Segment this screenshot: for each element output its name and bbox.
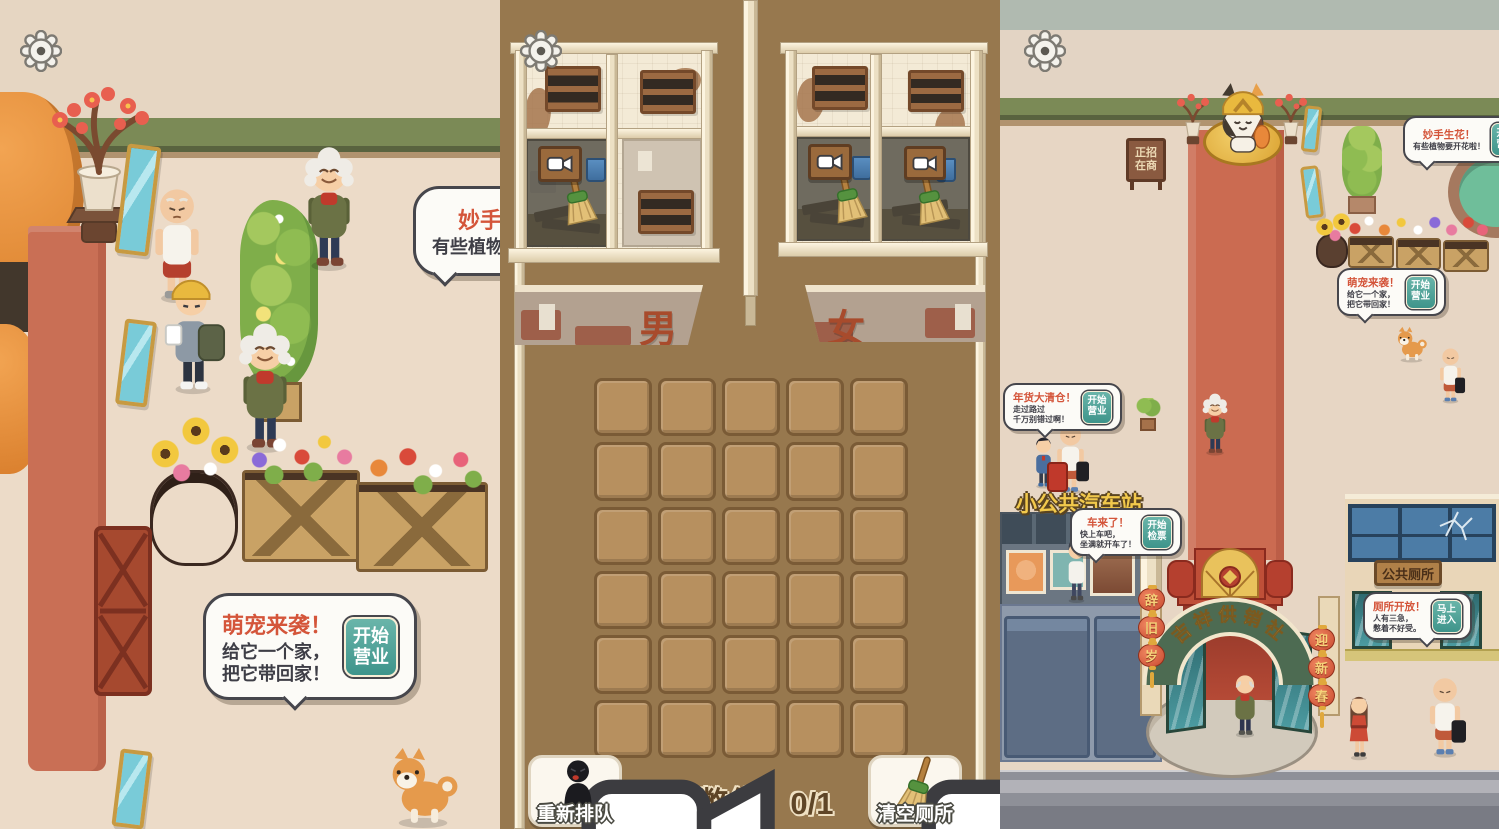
bubble-line: 憋着不好受。 bbox=[1373, 624, 1421, 634]
plum-pot bbox=[1170, 86, 1216, 150]
bubble-title: 妙手生花！ bbox=[1423, 127, 1476, 142]
building-post bbox=[970, 50, 983, 252]
grid-cell[interactable] bbox=[850, 442, 908, 500]
requeue-label: 重新排队 bbox=[537, 799, 613, 826]
settings-gear-icon[interactable] bbox=[20, 30, 62, 72]
planter-flowers bbox=[246, 424, 358, 484]
bubble-line: 人有三急， bbox=[1373, 614, 1413, 624]
bubble-text: 萌宠来袭！ 给它一个家， 把它带回家！ bbox=[1347, 275, 1400, 309]
bubble-line: 快上车吧， bbox=[1080, 530, 1120, 540]
flower-planter bbox=[1443, 240, 1489, 272]
enter-now-button[interactable]: 马上进入 bbox=[1432, 600, 1462, 633]
tall-plant bbox=[1342, 126, 1382, 198]
shiba-dog bbox=[1394, 326, 1428, 363]
grid-cell[interactable] bbox=[850, 700, 908, 758]
lantern: 迎 bbox=[1308, 628, 1335, 651]
red-carpet bbox=[1188, 130, 1284, 560]
grid-cell[interactable] bbox=[722, 700, 780, 758]
person-woman-red bbox=[1343, 684, 1375, 764]
grid-cell[interactable] bbox=[594, 700, 652, 758]
stall-window bbox=[908, 70, 964, 112]
grid-cell[interactable] bbox=[722, 442, 780, 500]
bubble-title: 萌宠来袭！ bbox=[222, 608, 332, 640]
person-bald-traveler bbox=[1435, 344, 1466, 404]
shiba-dog bbox=[383, 746, 461, 829]
red-shelf bbox=[94, 526, 152, 696]
person-granny bbox=[1198, 390, 1232, 456]
womens-wall: 女 bbox=[805, 285, 985, 342]
grid-cell[interactable] bbox=[658, 700, 716, 758]
floor-beam bbox=[785, 126, 983, 137]
lantern-char: 辞 bbox=[1145, 590, 1158, 609]
lantern-string-left: 辞 旧 岁 bbox=[1138, 588, 1165, 688]
grid-cell[interactable] bbox=[786, 635, 844, 693]
lantern: 旧 bbox=[1138, 616, 1165, 639]
watch-ad-sign[interactable] bbox=[808, 144, 852, 180]
pet-arrival-bubble: 萌宠来袭！ 给它一个家， 把它带回家！ 开始营业 bbox=[203, 593, 417, 700]
bubble-line: 走过路过 bbox=[1013, 405, 1045, 415]
toilet-sign-text: 公共厕所 bbox=[1382, 564, 1434, 583]
planter-flowers bbox=[360, 440, 486, 496]
building-post bbox=[515, 50, 527, 258]
start-business-button[interactable]: 开始营业 bbox=[1406, 276, 1436, 309]
divider-pole-foot bbox=[745, 296, 756, 326]
grid-cell[interactable] bbox=[722, 507, 780, 565]
bubble-title: 厕所开放！ bbox=[1373, 599, 1426, 614]
grid-cell[interactable] bbox=[594, 378, 652, 436]
road-lower bbox=[1000, 806, 1499, 829]
grid-cell[interactable] bbox=[850, 507, 908, 565]
lantern: 春 bbox=[1308, 684, 1335, 707]
wall-mirror bbox=[115, 318, 157, 407]
video-camera-icon bbox=[816, 152, 844, 172]
lantern-char: 春 bbox=[1315, 686, 1328, 705]
lantern-tassel bbox=[1150, 672, 1154, 688]
stall-window bbox=[812, 66, 868, 110]
grid-cell[interactable] bbox=[658, 635, 716, 693]
grid-cell[interactable] bbox=[850, 635, 908, 693]
grid-cell[interactable] bbox=[658, 442, 716, 500]
person-delivery-boy bbox=[160, 266, 226, 396]
flower-tip-bubble: 妙手生花！ 有些植物要开花啦！ 开始营业 bbox=[413, 186, 500, 276]
grid-cell[interactable] bbox=[658, 507, 716, 565]
person-granny-walking bbox=[296, 136, 362, 276]
grid-cell[interactable] bbox=[786, 571, 844, 629]
stall-window bbox=[640, 70, 696, 114]
flower-tip-bubble: 妙手生花！ 有些植物要开花啦！ 开始营业 bbox=[1403, 116, 1499, 163]
flower-planter bbox=[1396, 238, 1441, 270]
grid-cell[interactable] bbox=[722, 378, 780, 436]
roof-beam bbox=[780, 42, 988, 54]
grid-cell[interactable] bbox=[594, 507, 652, 565]
panel-flower-shop: 妙手生花！ 有些植物要开花啦！ 开始营业 萌宠来袭！ 给它一个家， 把它带回家！… bbox=[0, 0, 500, 829]
bubble-title: 车来了！ bbox=[1087, 515, 1129, 530]
bubble-text: 年货大清仓！ 走过路过 千万别错过啊！ bbox=[1013, 390, 1076, 424]
video-camera-icon bbox=[912, 154, 938, 173]
lantern-tassel bbox=[1320, 712, 1324, 728]
building-post bbox=[701, 50, 713, 258]
grid-cell[interactable] bbox=[722, 635, 780, 693]
base-ledge bbox=[778, 242, 988, 257]
sign-legs bbox=[1130, 182, 1162, 190]
planter-flowers bbox=[1348, 212, 1488, 242]
lantern-char: 新 bbox=[1315, 658, 1328, 677]
bubble-text: 车来了！ 快上车吧， 坐满就开车了！ bbox=[1080, 515, 1136, 549]
start-business-button[interactable]: 开始营业 bbox=[1491, 123, 1499, 156]
watch-ad-sign[interactable] bbox=[538, 146, 582, 182]
tile-grid bbox=[594, 378, 908, 758]
clear-toilet-button[interactable]: 清空厕所 bbox=[868, 755, 962, 827]
building-post bbox=[870, 54, 882, 248]
lantern: 岁 bbox=[1138, 644, 1165, 667]
divider-pole bbox=[743, 0, 758, 296]
person-shopkeeper bbox=[1228, 662, 1262, 742]
mens-wall: 男 bbox=[515, 285, 703, 345]
grid-cell[interactable] bbox=[658, 571, 716, 629]
base-ledge bbox=[508, 248, 720, 263]
recruiting-sign: 正招 在商 bbox=[1126, 138, 1166, 182]
lantern: 辞 bbox=[1138, 588, 1165, 611]
women-label: 女 bbox=[827, 298, 865, 353]
lantern-char: 迎 bbox=[1315, 630, 1328, 649]
bubble-title: 萌宠来袭！ bbox=[1347, 275, 1400, 290]
grid-cell[interactable] bbox=[786, 442, 844, 500]
bubble-text: 萌宠来袭！ 给它一个家， 把它带回家！ bbox=[222, 608, 332, 685]
bubble-text: 妙手生花！ 有些植物要开花啦！ bbox=[432, 203, 500, 259]
grid-cell[interactable] bbox=[786, 507, 844, 565]
bubble-line: 有些植物要开花啦！ bbox=[432, 237, 500, 259]
watch-ad-sign[interactable] bbox=[904, 146, 946, 180]
lantern-char: 岁 bbox=[1145, 646, 1158, 665]
stall-window bbox=[638, 190, 694, 234]
panel-street: 正招 在商 bbox=[1000, 0, 1499, 829]
pet-arrival-bubble: 萌宠来袭！ 给它一个家， 把它带回家！ 开始营业 bbox=[1337, 268, 1446, 316]
plant-pot bbox=[1140, 418, 1156, 431]
clearance-sale-bubble: 年货大清仓！ 走过路过 千万别错过啊！ 开始营业 bbox=[1003, 383, 1122, 431]
recruit-row: 在商 bbox=[1135, 160, 1157, 173]
building-post bbox=[606, 54, 618, 254]
start-business-button[interactable]: 开始营业 bbox=[344, 617, 398, 677]
grid-cell[interactable] bbox=[594, 442, 652, 500]
maneki-neko-icon bbox=[1210, 80, 1276, 156]
bubble-line: 千万别错过啊！ bbox=[1013, 415, 1069, 425]
toilet-open-bubble: 厕所开放！ 人有三急， 憋着不好受。 马上进入 bbox=[1363, 592, 1472, 640]
bubble-text: 厕所开放！ 人有三急， 憋着不好受。 bbox=[1373, 599, 1426, 633]
bubble-line: 给它一个家， bbox=[1347, 290, 1395, 300]
settings-gear-icon[interactable] bbox=[1024, 30, 1066, 72]
building-base bbox=[1345, 649, 1499, 661]
potted-plant bbox=[1135, 398, 1161, 420]
toilet-window-band bbox=[1348, 504, 1496, 562]
stall-window bbox=[545, 66, 601, 112]
settings-gear-icon[interactable] bbox=[520, 30, 562, 72]
poster bbox=[1006, 550, 1046, 594]
bubble-line: 坐满就开车了！ bbox=[1080, 540, 1136, 550]
panel-toilet-yard: 男 女 重新排队 没憋住：0/1 清空厕所 bbox=[500, 0, 1000, 829]
grid-cell[interactable] bbox=[786, 700, 844, 758]
game-screenshot-triptych: 妙手生花！ 有些植物要开花啦！ 开始营业 萌宠来袭！ 给它一个家， 把它带回家！… bbox=[0, 0, 1499, 829]
sunflower-cluster bbox=[148, 412, 244, 488]
lantern: 新 bbox=[1308, 656, 1335, 679]
video-camera-icon bbox=[546, 154, 574, 174]
public-toilet-sign: 公共厕所 bbox=[1374, 560, 1442, 586]
bus-roof-slab bbox=[1004, 616, 1090, 758]
wall-mirror bbox=[111, 748, 152, 829]
men-label: 男 bbox=[639, 298, 677, 353]
lantern-string-right: 迎 新 春 bbox=[1308, 628, 1335, 728]
bus-arrived-bubble: 车来了！ 快上车吧， 坐满就开车了！ 开始检票 bbox=[1070, 508, 1182, 556]
grid-cell[interactable] bbox=[850, 378, 908, 436]
bubble-line: 把它带回家！ bbox=[1347, 300, 1395, 310]
grid-cell[interactable] bbox=[658, 378, 716, 436]
grid-cell[interactable] bbox=[850, 571, 908, 629]
bubble-line: 把它带回家！ bbox=[222, 664, 330, 686]
building-post bbox=[785, 50, 797, 252]
start-business-button[interactable]: 开始营业 bbox=[1082, 391, 1112, 424]
wall-mirror bbox=[1301, 105, 1323, 153]
recruit-row: 正招 bbox=[1135, 147, 1157, 160]
grid-cell[interactable] bbox=[594, 571, 652, 629]
road-stripe bbox=[1000, 780, 1499, 793]
grid-cell[interactable] bbox=[722, 571, 780, 629]
bubble-title: 妙手生花！ bbox=[458, 203, 500, 235]
glass-crack bbox=[1432, 510, 1488, 544]
clear-toilet-label: 清空厕所 bbox=[877, 799, 953, 826]
top-strip bbox=[1000, 0, 1499, 30]
bubble-text: 妙手生花！ 有些植物要开花啦！ bbox=[1413, 127, 1485, 152]
start-ticket-check-button[interactable]: 开始检票 bbox=[1142, 516, 1172, 549]
bubble-title: 年货大清仓！ bbox=[1013, 390, 1076, 405]
grid-cell[interactable] bbox=[786, 378, 844, 436]
person-bald-traveler bbox=[1424, 668, 1466, 762]
requeue-button[interactable]: 重新排队 bbox=[528, 755, 622, 827]
bubble-line: 给它一个家， bbox=[222, 642, 330, 664]
grid-cell[interactable] bbox=[594, 635, 652, 693]
bubble-line: 有些植物要开花啦！ bbox=[1413, 142, 1485, 152]
lantern-char: 旧 bbox=[1145, 618, 1158, 637]
